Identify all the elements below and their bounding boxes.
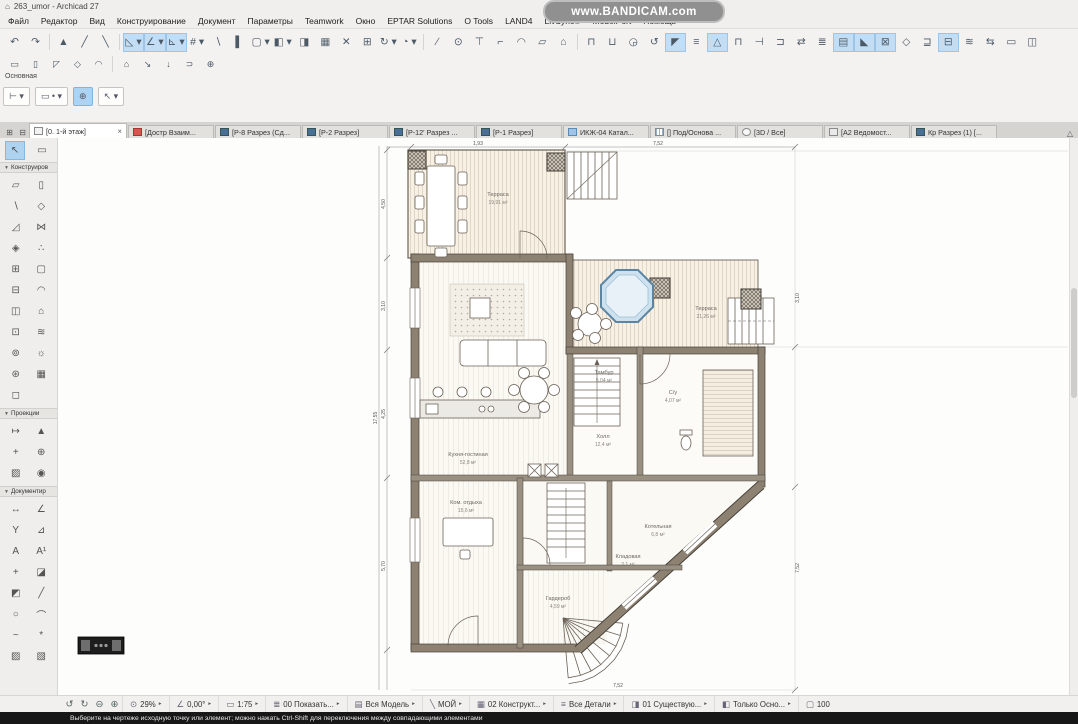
segment-icon: ╲: [430, 699, 435, 710]
zoom-level-select[interactable]: ⊙ 29% ▸: [122, 696, 169, 712]
tab-a2-vedomost[interactable]: [А2 Ведомост...: [824, 125, 910, 138]
magnify-icon[interactable]: ⊙: [448, 33, 469, 52]
svg-text:3,10: 3,10: [381, 301, 387, 311]
guide-lines-icon[interactable]: ◺ ▾: [123, 33, 144, 52]
svg-text:3,10: 3,10: [795, 293, 801, 303]
section-marker-icon[interactable]: ▤: [833, 33, 854, 52]
svg-text:4,07 м²: 4,07 м²: [665, 398, 682, 404]
redo-icon[interactable]: ↷: [25, 33, 46, 52]
modify-icon[interactable]: ⊞: [357, 33, 378, 52]
slab-tool[interactable]: ◇: [29, 196, 53, 217]
swap-reference-icon[interactable]: ⇆: [980, 33, 1001, 52]
radial-dimension-tool[interactable]: ⊿: [29, 520, 53, 541]
wall-int-4: [517, 478, 523, 648]
tab-label: [А2 Ведомост...: [841, 128, 892, 137]
svg-text:7,52: 7,52: [613, 683, 623, 689]
svg-text:19,91 м²: 19,91 м²: [488, 200, 507, 206]
segment-icon: ≡: [561, 699, 566, 709]
tab-p1-razrez[interactable]: [Р-1 Разрез]: [476, 125, 562, 138]
archicad-window: ⌂ 263_umor - Archicad 27 ФайлРедакторВид…: [0, 0, 1078, 724]
dropdown-arrow-icon: ▸: [337, 701, 340, 707]
tab-label: [] Под/Основа ...: [667, 128, 721, 137]
dropdown-arrow-icon: ▸: [208, 701, 211, 707]
slab-quick-icon[interactable]: ◇: [67, 56, 88, 72]
status-bar: ↺↻⊖⊕ ⊙ 29% ▸ ∠ 0,00° ▸ ▭ 1:75 ▸ ≣ 00 Пок…: [0, 695, 1078, 712]
separator: [423, 34, 424, 50]
toolbox-section-construct[interactable]: ▼Конструиров: [0, 162, 57, 173]
segment-icon: ∠: [177, 699, 185, 710]
mirror-icon[interactable]: ⇄: [791, 33, 812, 52]
object-tool[interactable]: ⊚: [4, 343, 28, 364]
info-box-toolbar: ⊢ ▾▭ • ▾⊕↖ ▾: [3, 85, 124, 107]
toolbar-row-2: ▭▯◸◇◠⌂↘↓⊃⊕: [0, 56, 420, 72]
separator: [119, 34, 120, 50]
hint-bar: Выберите на чертеже исходную точку или э…: [0, 712, 1078, 724]
tab-3d-vse[interactable]: [3D / Все]: [737, 125, 823, 138]
svg-text:Кладовая: Кладовая: [615, 554, 640, 560]
gravity-icon[interactable]: ▌: [229, 33, 250, 52]
tab-close-icon[interactable]: ×: [117, 127, 122, 136]
tab-icon: [220, 128, 229, 136]
align-icon[interactable]: ⊣: [749, 33, 770, 52]
distribute-icon[interactable]: ⊐: [770, 33, 791, 52]
opening-tool[interactable]: ▢: [29, 259, 53, 280]
stories-icon[interactable]: ≣: [812, 33, 833, 52]
svg-text:4,59 м²: 4,59 м²: [550, 604, 567, 610]
svg-text:52,8 м²: 52,8 м²: [460, 460, 477, 466]
tab-label: ИКЖ-04 Катал...: [580, 128, 634, 137]
svg-text:Кухня-гостиная: Кухня-гостиная: [448, 452, 488, 458]
previous-zoom-icon[interactable]: ↻: [77, 697, 92, 712]
menu-item[interactable]: Параметры: [242, 16, 299, 26]
info-box-label: Основная: [5, 73, 37, 80]
menu-item[interactable]: O Tools: [458, 16, 499, 26]
lamp-tool[interactable]: ☼: [29, 343, 53, 364]
layer-combination-select[interactable]: ≣ 00 Показать... ▸: [265, 696, 346, 712]
magic-wand-button[interactable]: ⊕: [73, 87, 93, 106]
segment-label: Только Осно...: [733, 700, 785, 709]
svg-text:21,26 м²: 21,26 м²: [696, 314, 715, 320]
svg-text:4,25: 4,25: [381, 409, 387, 419]
tab-icon: [742, 128, 751, 136]
separator: [577, 34, 578, 50]
interior-elevation-tool[interactable]: +: [4, 442, 28, 463]
figure-tool[interactable]: ▨: [4, 646, 28, 667]
renovation-status-icon[interactable]: ⊒: [917, 33, 938, 52]
tab-bar: ⊞ ⊟ [0. 1-й этаж] × [Достр Взаим... [Р-8…: [0, 122, 1078, 138]
fill-tool[interactable]: ◪: [29, 562, 53, 583]
wall-extras-icon[interactable]: ⊓: [581, 33, 602, 52]
tab-dostr-vzaim[interactable]: [Достр Взаим...: [128, 125, 214, 138]
position-indicator: ▢ 100: [798, 696, 840, 712]
svg-text:Гардероб: Гардероб: [546, 596, 571, 602]
story-tab-icon: [34, 127, 43, 135]
virtual-trace-icon[interactable]: ⊟: [938, 33, 959, 52]
svg-text:15,6 м²: 15,6 м²: [458, 508, 475, 514]
roof-tool[interactable]: ◿: [4, 217, 28, 238]
tab-icon: [481, 128, 490, 136]
segment-label: 29%: [140, 700, 156, 709]
zone-tool[interactable]: ▦: [29, 364, 53, 385]
leader-quick-icon[interactable]: ↘: [137, 56, 158, 72]
graphic-override-select[interactable]: ◨ 01 Существую... ▸: [623, 696, 714, 712]
adjust-icon[interactable]: ⊤: [469, 33, 490, 52]
cursor-snap-icon[interactable]: ∖: [208, 33, 229, 52]
wall-quick-icon[interactable]: ▭: [4, 56, 25, 72]
dropdown-arrow-icon: ▸: [459, 701, 462, 707]
zoom-out-icon[interactable]: ⊖: [92, 697, 107, 712]
object-quick-icon[interactable]: ⌂: [116, 56, 137, 72]
dropdown-arrow-icon: ▸: [704, 701, 707, 707]
drawing-tool[interactable]: ▧: [29, 646, 53, 667]
toolbox-section-views[interactable]: ▼Проекции: [0, 408, 57, 419]
tab-label: [Р-12' Разрез ...: [406, 128, 457, 137]
roof-extras-icon[interactable]: ⊔: [602, 33, 623, 52]
menu-item[interactable]: Окно: [350, 16, 382, 26]
wall-int-5: [607, 481, 612, 571]
camera-path-icon[interactable]: ◣: [854, 33, 875, 52]
jacuzzi-octagon: [601, 270, 653, 322]
tab-p2-razrez[interactable]: [Р-2 Разрез]: [302, 125, 388, 138]
toolbox-palette: ↖▭ ▼Конструиров ▱▯∖◇◿⋈◈∴⊞▢⊟◠◫⌂⊡≋⊚☼⊛▦◻ ▼П…: [0, 138, 58, 695]
segment-icon: ≣: [273, 699, 280, 710]
tab-ikzh-04-katalog[interactable]: ИКЖ-04 Катал...: [563, 125, 649, 138]
segment-label: 0,00°: [187, 700, 205, 709]
floor-plan: 4,50 3,10 4,25 5,70 17,55 1,93 7,52 3,10…: [58, 138, 1078, 695]
camera-tool[interactable]: ◉: [29, 463, 53, 484]
vertical-scrollbar[interactable]: [1069, 138, 1078, 695]
marquee-tool[interactable]: ▭: [32, 141, 52, 160]
structure-display-select[interactable]: ▤ Вся Модель ▸: [347, 696, 422, 712]
separator: [49, 34, 50, 50]
interior-stair-upper: [574, 358, 620, 426]
line-tool[interactable]: ╱: [29, 583, 53, 604]
menu-item[interactable]: Вид: [84, 16, 111, 26]
offset-icon[interactable]: ▱: [532, 33, 553, 52]
zoom-nav-icons: ↺↻⊖⊕: [62, 697, 122, 712]
skylight-tool[interactable]: ⌂: [29, 301, 53, 322]
zoom-in-icon[interactable]: ⊕: [107, 697, 122, 712]
svg-text:С/у: С/у: [669, 390, 678, 396]
scrollbar-thumb[interactable]: [1071, 288, 1077, 398]
segment-icon: ▦: [477, 699, 485, 710]
stair-tool[interactable]: ⊟: [4, 280, 28, 301]
reference-line-button[interactable]: ⊢ ▾: [3, 87, 30, 106]
element-settings-icon[interactable]: ◧ ▾: [272, 33, 294, 52]
segment-icon: ▢: [806, 699, 814, 710]
segment-label: 02 Конструкт...: [488, 700, 540, 709]
wall-living-east: [566, 254, 573, 354]
wall-tool[interactable]: ▱: [4, 175, 28, 196]
tab-label: [Р-1 Разрез]: [493, 128, 533, 137]
svg-text:17,55: 17,55: [373, 412, 379, 425]
segment-label: 100: [817, 700, 830, 709]
wall-int-1: [567, 354, 573, 478]
dropdown-arrow-icon: ▸: [614, 701, 617, 707]
wall-int-6: [517, 565, 682, 570]
scale-select[interactable]: ▭ 1:75 ▸: [218, 696, 265, 712]
text-tool[interactable]: A: [4, 541, 28, 562]
segment-label: 01 Существую...: [642, 700, 701, 709]
column-4: [741, 289, 761, 309]
label-tool[interactable]: A¹: [29, 541, 53, 562]
tab-overflow-icon[interactable]: △: [1062, 129, 1078, 138]
tab-pod-osnova[interactable]: [] Под/Основа ...: [650, 125, 736, 138]
complex-roof-tool[interactable]: ◈: [4, 238, 28, 259]
tab-icon: [568, 128, 577, 136]
segment-icon: ◧: [722, 699, 730, 710]
arc-segment-icon[interactable]: ◔ ▾: [399, 33, 420, 52]
railing-tool[interactable]: ◠: [29, 280, 53, 301]
angle-dimension-tool[interactable]: ∠: [29, 499, 53, 520]
worksheet-tool[interactable]: ⊕: [29, 442, 53, 463]
snap-guides-icon[interactable]: ∠ ▾: [144, 33, 166, 52]
drawing-canvas[interactable]: 4,50 3,10 4,25 5,70 17,55 1,93 7,52 3,10…: [58, 138, 1078, 695]
rotate-icon[interactable]: ↻ ▾: [378, 33, 399, 52]
menu-item[interactable]: EPTAR Solutions: [381, 16, 458, 26]
bounding-box-icon[interactable]: ▭: [1001, 33, 1022, 52]
segment-label: 00 Показать...: [283, 700, 333, 709]
tab-list: [Достр Взаим... [Р-8 Разрез (Сд... [Р-2 …: [128, 125, 998, 138]
tab-p8-razrez[interactable]: [Р-8 Разрез (Сд...: [215, 125, 301, 138]
trim-icon[interactable]: ⌐: [490, 33, 511, 52]
tab-label: [Р-8 Разрез (Сд...: [232, 128, 290, 137]
tab-label: [Р-2 Разрез]: [319, 128, 359, 137]
fillet-icon[interactable]: ◠: [511, 33, 532, 52]
morph-operations-icon[interactable]: ◇: [896, 33, 917, 52]
svg-text:6,8 м²: 6,8 м²: [651, 532, 665, 538]
svg-text:Котельная: Котельная: [644, 524, 671, 530]
svg-text:Ком. отдыха: Ком. отдыха: [450, 500, 483, 506]
svg-text:Тамбур: Тамбур: [595, 370, 614, 376]
pick-up-parameters-icon[interactable]: ╲: [95, 33, 116, 52]
hotlink-tool[interactable]: *: [29, 625, 53, 646]
arrow-tool-button[interactable]: ↖ ▾: [98, 87, 125, 106]
dimension-style-icon[interactable]: ⊓: [728, 33, 749, 52]
segment-label: МОЙ: [438, 700, 456, 709]
menu-item[interactable]: Файл: [2, 16, 35, 26]
window-tool[interactable]: ◫: [4, 301, 28, 322]
circle-tool[interactable]: ○: [4, 604, 28, 625]
app-icon: ⌂: [5, 2, 10, 11]
grid-snap-icon[interactable]: # ▾: [187, 33, 208, 52]
pop-up-navigator-button[interactable]: ⊞: [3, 126, 16, 138]
orbit-icon[interactable]: ↺: [644, 33, 665, 52]
tab-icon: [307, 128, 316, 136]
pen-set-select[interactable]: ╲ МОЙ ▸: [422, 696, 469, 712]
view-tools: ↦▲+⊕▨◉: [0, 419, 57, 486]
inject-parameters-icon[interactable]: ▦: [315, 33, 336, 52]
ending-tool[interactable]: ◻: [4, 385, 28, 406]
bandicam-watermark: www.BANDICAM.com: [543, 0, 725, 23]
document-tools: ↔∠Y⊿AA¹+◪◩╱○⌒~*▨▧: [0, 497, 57, 669]
wall-east: [758, 347, 765, 487]
dropdown-arrow-icon: ▸: [159, 701, 162, 707]
arrow-tool[interactable]: ↖: [5, 141, 25, 160]
pick-up-icon[interactable]: ◨: [294, 33, 315, 52]
door-tool[interactable]: ⊡: [4, 322, 28, 343]
svg-text:Терраса: Терраса: [695, 306, 717, 312]
favorites-icon[interactable]: ▢ ▾: [250, 33, 272, 52]
sofa: [460, 340, 546, 366]
menu-item[interactable]: Документ: [192, 16, 242, 26]
beam-tool[interactable]: ∖: [4, 196, 28, 217]
svg-text:Холл: Холл: [596, 434, 609, 440]
detail-level-select[interactable]: ≡ Все Детали ▸: [553, 696, 623, 712]
menu-item[interactable]: Редактор: [35, 16, 84, 26]
intersect-icon[interactable]: ⌂: [553, 33, 574, 52]
hotspot-tool[interactable]: +: [4, 562, 28, 583]
quick-options: ⊙ 29% ▸ ∠ 0,00° ▸ ▭ 1:75 ▸ ≣ 00 Показать…: [122, 696, 840, 712]
arc-quick-icon[interactable]: ◠: [88, 56, 109, 72]
tab-label: [3D / Все]: [754, 128, 786, 137]
dropdown-arrow-icon: ▸: [543, 701, 546, 707]
tab-p12-razrez[interactable]: [Р-12' Разрез ...: [389, 125, 475, 138]
sauna-bench: [703, 370, 753, 456]
segment-icon: ◨: [631, 699, 639, 710]
drop-quick-icon[interactable]: ↓: [158, 56, 179, 72]
morph-tool[interactable]: ⊛: [4, 364, 28, 385]
eraser-icon[interactable]: ✕: [336, 33, 357, 52]
toolbox-section-document[interactable]: ▼Документир: [0, 486, 57, 497]
window-arrange-icon[interactable]: ◫: [1022, 33, 1043, 52]
menu-item[interactable]: LAND4: [499, 16, 538, 26]
menu-bar: ФайлРедакторВидКонструированиеДокументПа…: [0, 13, 1078, 28]
spline-tool[interactable]: ~: [4, 625, 28, 646]
dropdown-arrow-icon: ▸: [412, 701, 415, 707]
column-1: [408, 151, 426, 169]
toilet: [680, 430, 692, 450]
tab-icon: [655, 128, 664, 136]
tab-icon: [394, 128, 403, 136]
undo-icon[interactable]: ↶: [4, 33, 25, 52]
wall-deck-south: [566, 347, 765, 354]
tab-label: [Достр Взаим...: [145, 128, 196, 137]
marquee-operations-icon[interactable]: ⊠: [875, 33, 896, 52]
tab-icon: [916, 128, 925, 136]
column-tool[interactable]: ▯: [29, 175, 53, 196]
section-tool[interactable]: ↦: [4, 421, 28, 442]
segment-label: Все Детали: [569, 700, 611, 709]
roof-quick-icon[interactable]: ◸: [46, 56, 67, 72]
svg-text:1,93: 1,93: [473, 141, 483, 147]
dropdown-arrow-icon: ▸: [255, 701, 258, 707]
svg-text:5,04 м²: 5,04 м²: [596, 378, 613, 384]
tab-icon: [133, 128, 142, 136]
tab-label: Кр Разрез (1) [...: [928, 128, 982, 137]
segment-icon: ▤: [355, 699, 363, 710]
layer-settings-icon[interactable]: ≡: [686, 33, 707, 52]
split-icon[interactable]: ∕: [427, 33, 448, 52]
toolbar-row-1: ↶↷▲╱╲◺ ▾∠ ▾⊾ ▾# ▾∖▌▢ ▾◧ ▾◨▦✕⊞↻ ▾◔ ▾∕⊙⊤⌐◠…: [0, 28, 1078, 56]
segment-icon: ⊙: [130, 699, 137, 710]
segment-label: 1:75: [237, 700, 252, 709]
mesh-tool[interactable]: ≋: [29, 322, 53, 343]
organize-tabs-button[interactable]: ⊟: [16, 126, 29, 138]
construct-tools: ▱▯∖◇◿⋈◈∴⊞▢⊟◠◫⌂⊡≋⊚☼⊛▦◻: [0, 173, 57, 408]
shell-tool[interactable]: ⋈: [29, 217, 53, 238]
renovation-filter-select[interactable]: ◧ Только Осно... ▸: [714, 696, 798, 712]
surface-painter-icon[interactable]: ≋: [959, 33, 980, 52]
interior-stair-lower: [547, 483, 585, 563]
svg-text:2,1 м²: 2,1 м²: [621, 562, 635, 568]
dimension-tool[interactable]: ↔: [4, 499, 28, 520]
pin-icon[interactable]: ▲: [53, 33, 74, 52]
wall-south: [411, 644, 581, 652]
dropdown-arrow-icon: ▸: [788, 701, 791, 707]
mark-up-icon[interactable]: △: [707, 33, 728, 52]
segment-label: Вся Модель: [366, 700, 409, 709]
menu-item[interactable]: Teamwork: [299, 16, 350, 26]
target-quick-icon[interactable]: ⊕: [200, 56, 221, 72]
level-dimension-tool[interactable]: Y: [4, 520, 28, 541]
menu-item[interactable]: Конструирование: [111, 16, 192, 26]
svg-text:12,4 м²: 12,4 м²: [595, 442, 612, 448]
elevation-tool[interactable]: ▲: [29, 421, 53, 442]
fit-in-window-icon[interactable]: ↺: [62, 697, 77, 712]
detail-tool[interactable]: ▨: [4, 463, 28, 484]
column-2: [547, 153, 565, 171]
tab-kr-razrez[interactable]: Кр Разрез (1) [...: [911, 125, 997, 138]
coffee-table: [470, 298, 490, 318]
svg-text:7,52: 7,52: [795, 563, 801, 573]
pen-icon[interactable]: ╱: [74, 33, 95, 52]
model-view-options-select[interactable]: ▦ 02 Конструкт... ▸: [469, 696, 553, 712]
solid-operations-icon[interactable]: ◶: [623, 33, 644, 52]
arc-tool[interactable]: ⌒: [29, 604, 53, 625]
tab-active-story[interactable]: [0. 1-й этаж] ×: [29, 123, 127, 138]
svg-text:4,50: 4,50: [381, 199, 387, 209]
column-quick-icon[interactable]: ▯: [25, 56, 46, 72]
mesh-point-tool[interactable]: ∴: [29, 238, 53, 259]
tab-icon: [829, 128, 838, 136]
svg-text:Терраса: Терраса: [487, 192, 509, 198]
geometry-method-button[interactable]: ▭ • ▾: [35, 87, 68, 106]
hook-quick-icon[interactable]: ⊃: [179, 56, 200, 72]
corner-window-icon[interactable]: ◤: [665, 33, 686, 52]
curtain-wall-tool[interactable]: ⊞: [4, 259, 28, 280]
tab-label: [0. 1-й этаж]: [46, 127, 86, 136]
title-bar: ⌂ 263_umor - Archicad 27: [0, 0, 1078, 13]
wall-int-3: [411, 475, 765, 481]
separator: [112, 56, 113, 72]
segment-icon: ▭: [226, 699, 234, 710]
hint-text: Выберите на чертеже исходную точку или э…: [70, 715, 483, 722]
polygon-tool[interactable]: ◩: [4, 583, 28, 604]
svg-text:5,70: 5,70: [381, 561, 387, 571]
top-exterior-stair: [567, 152, 617, 199]
legend-element[interactable]: [78, 637, 124, 654]
window-title: 263_umor - Archicad 27: [14, 2, 99, 11]
svg-text:7,52: 7,52: [653, 141, 663, 147]
select-tools: ↖▭: [0, 138, 57, 162]
snap-points-icon[interactable]: ⊾ ▾: [166, 33, 187, 52]
orientation-select[interactable]: ∠ 0,00° ▸: [169, 696, 219, 712]
